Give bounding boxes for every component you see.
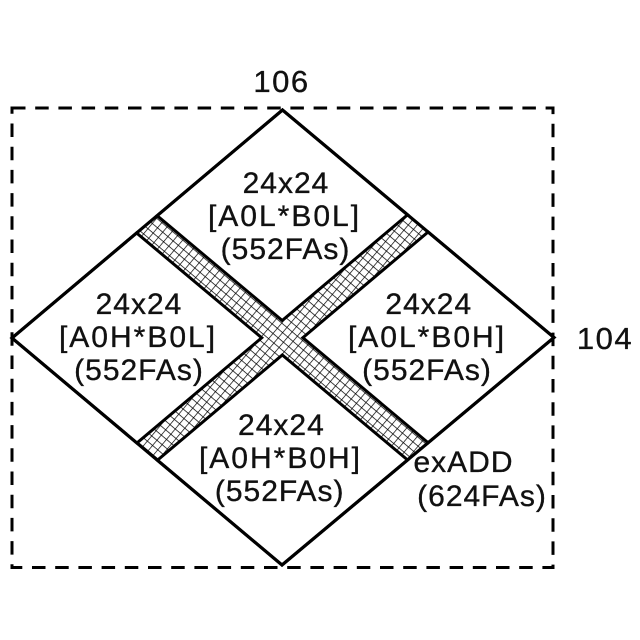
svg-text:(552FAs): (552FAs) <box>215 475 345 508</box>
svg-text:24x24: 24x24 <box>238 409 325 442</box>
svg-text:24x24: 24x24 <box>243 167 330 200</box>
svg-text:(624FAs): (624FAs) <box>417 480 547 513</box>
svg-text:(552FAs): (552FAs) <box>221 233 351 266</box>
svg-text:24x24: 24x24 <box>385 288 472 321</box>
svg-text:24x24: 24x24 <box>96 288 183 321</box>
svg-text:[A0H*B0L]: [A0H*B0L] <box>59 321 217 354</box>
svg-text:104: 104 <box>577 321 633 356</box>
svg-text:(552FAs): (552FAs) <box>74 354 204 387</box>
svg-text:106: 106 <box>253 64 309 99</box>
svg-text:exADD: exADD <box>413 446 513 479</box>
svg-text:[A0L*B0H]: [A0L*B0H] <box>348 321 506 354</box>
svg-text:[A0L*B0L]: [A0L*B0L] <box>208 200 361 233</box>
svg-text:(552FAs): (552FAs) <box>362 354 492 387</box>
svg-text:[A0H*B0H]: [A0H*B0H] <box>199 442 362 475</box>
